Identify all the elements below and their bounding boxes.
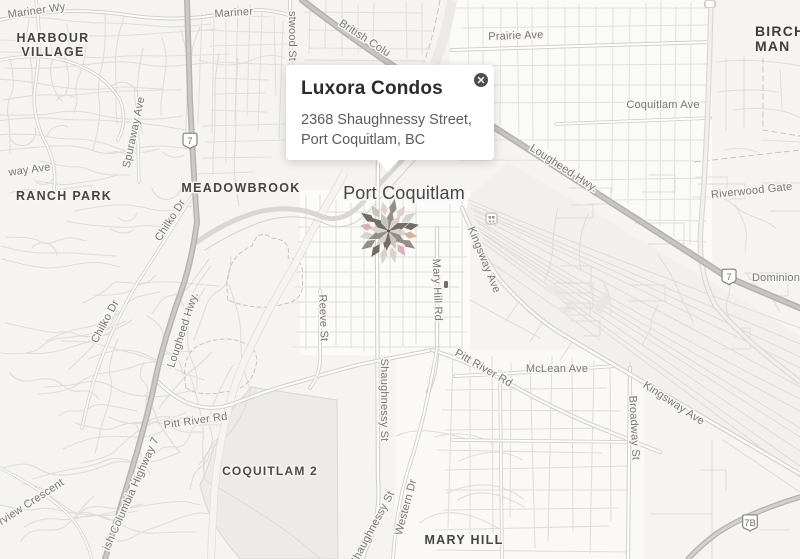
svg-text:Port Coquitlam: Port Coquitlam bbox=[343, 183, 465, 203]
svg-text:7: 7 bbox=[726, 272, 731, 282]
svg-text:Mary Hill Rd: Mary Hill Rd bbox=[430, 259, 444, 322]
svg-text:stwood St: stwood St bbox=[286, 11, 298, 61]
svg-text:Reeve St: Reeve St bbox=[316, 294, 330, 341]
svg-text:MARY HILL: MARY HILL bbox=[424, 533, 503, 547]
svg-text:RANCH PARK: RANCH PARK bbox=[16, 189, 112, 203]
svg-text:Prairie Ave: Prairie Ave bbox=[488, 29, 544, 43]
svg-text:MEADOWBROOK: MEADOWBROOK bbox=[181, 181, 300, 195]
svg-text:Shaughnessy St: Shaughnessy St bbox=[378, 359, 390, 442]
svg-text:MAN: MAN bbox=[755, 38, 790, 54]
svg-text:McLean Ave: McLean Ave bbox=[526, 363, 588, 375]
svg-text:COQUITLAM 2: COQUITLAM 2 bbox=[222, 464, 318, 478]
svg-text:7B: 7B bbox=[744, 518, 756, 529]
svg-text:HARBOUR: HARBOUR bbox=[17, 31, 90, 45]
svg-text:Coquitlam Ave: Coquitlam Ave bbox=[626, 99, 699, 111]
svg-text:Dominion: Dominion bbox=[752, 272, 800, 284]
svg-text:BIRCH: BIRCH bbox=[755, 23, 800, 39]
svg-text:7: 7 bbox=[187, 136, 192, 146]
svg-text:VILLAGE: VILLAGE bbox=[21, 45, 84, 59]
